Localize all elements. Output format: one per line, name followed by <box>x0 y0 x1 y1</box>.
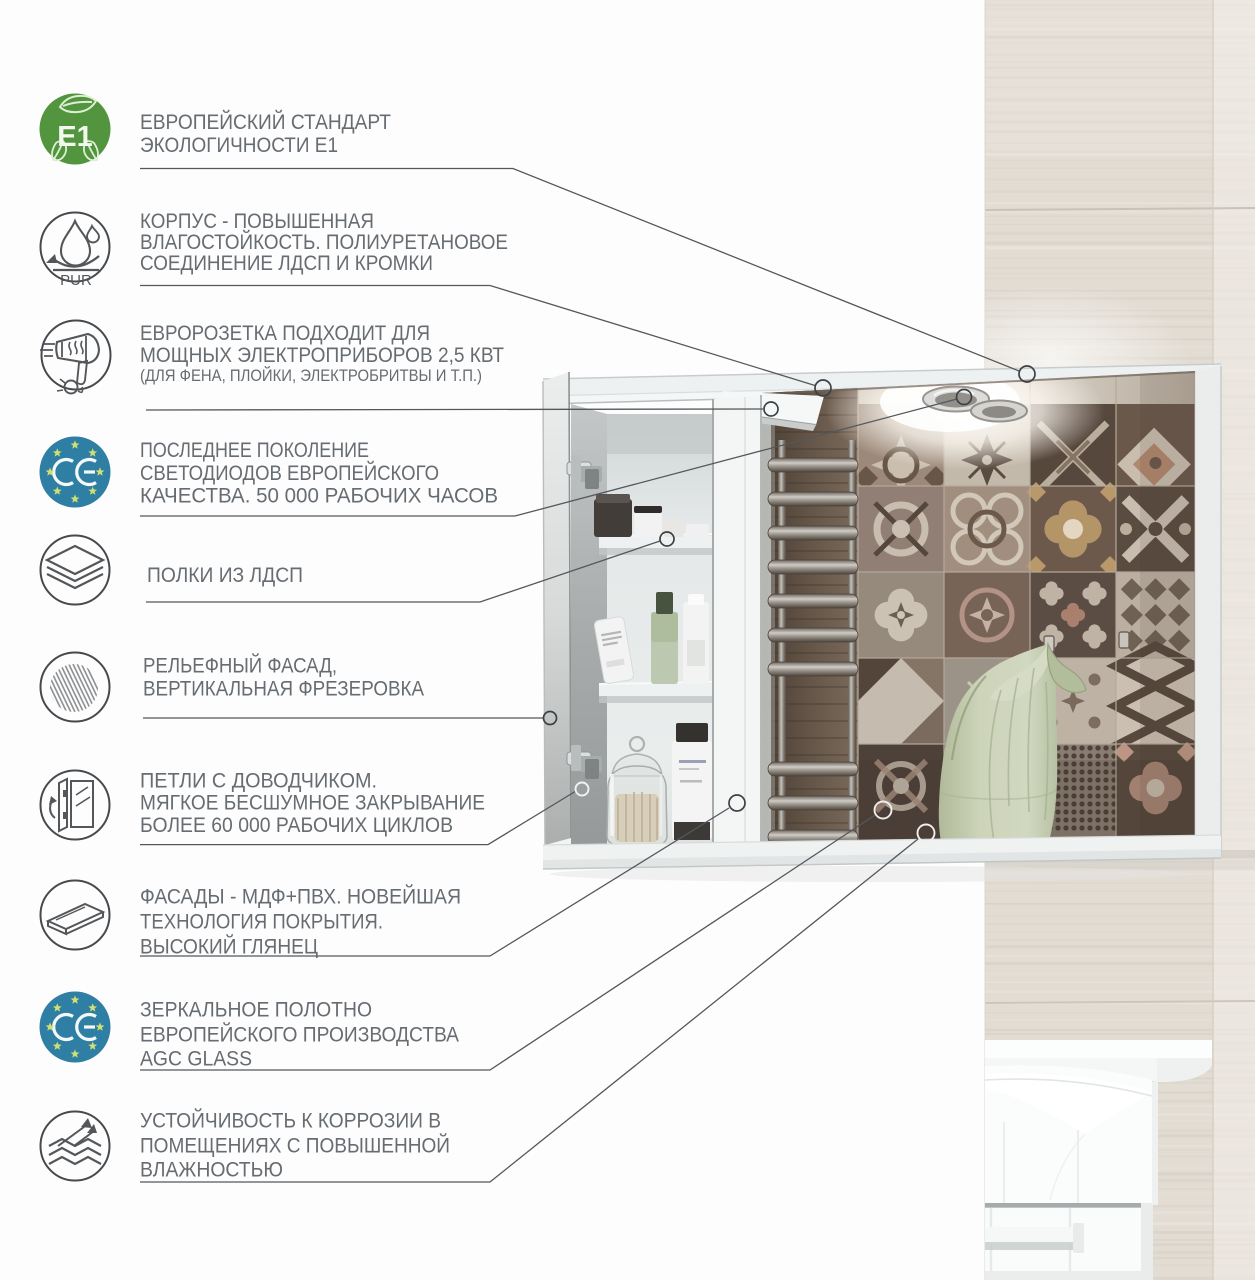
svg-text:PUR: PUR <box>60 272 92 289</box>
svg-text:ПОСЛЕДНЕЕ ПОКОЛЕНИЕ: ПОСЛЕДНЕЕ ПОКОЛЕНИЕ <box>140 439 369 462</box>
svg-text:ФАСАДЫ - МДФ+ПВХ. НОВЕЙШАЯ: ФАСАДЫ - МДФ+ПВХ. НОВЕЙШАЯ <box>140 884 461 908</box>
svg-text:УСТОЙЧИВОСТЬ К КОРРОЗИИ В: УСТОЙЧИВОСТЬ К КОРРОЗИИ В <box>140 1108 441 1132</box>
svg-text:ЗЕРКАЛЬНОЕ ПОЛОТНО: ЗЕРКАЛЬНОЕ ПОЛОТНО <box>140 998 372 1021</box>
svg-text:БОЛЕЕ 60 000 РАБОЧИХ ЦИКЛОВ: БОЛЕЕ 60 000 РАБОЧИХ ЦИКЛОВ <box>140 814 453 837</box>
svg-text:ВЛАГОСТОЙКОСТЬ. ПОЛИУРЕТАНОВОЕ: ВЛАГОСТОЙКОСТЬ. ПОЛИУРЕТАНОВОЕ <box>140 230 508 254</box>
svg-text:КАЧЕСТВА. 50 000 РАБОЧИХ ЧАСОВ: КАЧЕСТВА. 50 000 РАБОЧИХ ЧАСОВ <box>140 484 498 507</box>
svg-text:МЯГКОЕ БЕСШУМНОЕ ЗАКРЫВАНИЕ: МЯГКОЕ БЕСШУМНОЕ ЗАКРЫВАНИЕ <box>140 792 485 815</box>
svg-text:ТЕХНОЛОГИЯ ПОКРЫТИЯ.: ТЕХНОЛОГИЯ ПОКРЫТИЯ. <box>140 910 383 933</box>
svg-text:(ДЛЯ ФЕНА, ПЛОЙКИ, ЭЛЕКТРОБРИТ: (ДЛЯ ФЕНА, ПЛОЙКИ, ЭЛЕКТРОБРИТВЫ И Т.П.) <box>140 366 482 385</box>
svg-text:МОЩНЫХ ЭЛЕКТРОПРИБОРОВ 2,5 КВТ: МОЩНЫХ ЭЛЕКТРОПРИБОРОВ 2,5 КВТ <box>140 344 504 367</box>
svg-text:СОЕДИНЕНИЕ ЛДСП И КРОМКИ: СОЕДИНЕНИЕ ЛДСП И КРОМКИ <box>140 252 433 275</box>
svg-text:ПЕТЛИ С ДОВОДЧИКОМ.: ПЕТЛИ С ДОВОДЧИКОМ. <box>140 770 377 793</box>
svg-text:ВЛАЖНОСТЬЮ: ВЛАЖНОСТЬЮ <box>140 1158 283 1181</box>
svg-text:ПОЛКИ ИЗ ЛДСП: ПОЛКИ ИЗ ЛДСП <box>147 564 303 587</box>
svg-text:AGC GLASS: AGC GLASS <box>140 1047 252 1070</box>
svg-text:ЭКОЛОГИЧНОСТИ Е1: ЭКОЛОГИЧНОСТИ Е1 <box>140 134 338 157</box>
svg-text:ВЕРТИКАЛЬНАЯ ФРЕЗЕРОВКА: ВЕРТИКАЛЬНАЯ ФРЕЗЕРОВКА <box>143 677 424 700</box>
svg-text:ЕВРОПЕЙСКИЙ СТАНДАРТ: ЕВРОПЕЙСКИЙ СТАНДАРТ <box>140 110 391 134</box>
svg-text:E1: E1 <box>57 121 92 153</box>
svg-text:КОРПУС - ПОВЫШЕННАЯ: КОРПУС - ПОВЫШЕННАЯ <box>140 210 374 233</box>
svg-text:ЕВРОПЕЙСКОГО ПРОИЗВОДСТВА: ЕВРОПЕЙСКОГО ПРОИЗВОДСТВА <box>140 1022 459 1046</box>
svg-text:ЕВРОРОЗЕТКА ПОДХОДИТ ДЛЯ: ЕВРОРОЗЕТКА ПОДХОДИТ ДЛЯ <box>140 322 430 345</box>
svg-text:СВЕТОДИОДОВ ЕВРОПЕЙСКОГО: СВЕТОДИОДОВ ЕВРОПЕЙСКОГО <box>140 461 439 485</box>
svg-text:ПОМЕЩЕНИЯХ С ПОВЫШЕННОЙ: ПОМЕЩЕНИЯХ С ПОВЫШЕННОЙ <box>140 1133 450 1157</box>
svg-text:ВЫСОКИЙ ГЛЯНЕЦ: ВЫСОКИЙ ГЛЯНЕЦ <box>140 934 318 958</box>
svg-text:РЕЛЬЕФНЫЙ ФАСАД,: РЕЛЬЕФНЫЙ ФАСАД, <box>143 653 337 677</box>
